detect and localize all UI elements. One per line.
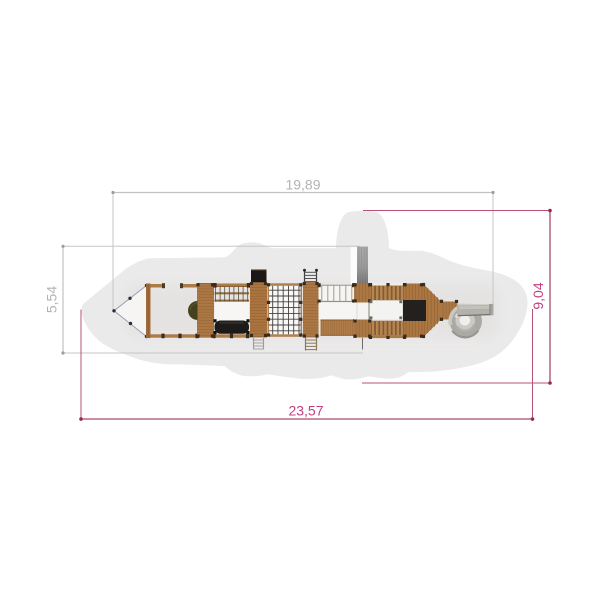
svg-text:5,54: 5,54 <box>44 286 60 313</box>
svg-text:19,89: 19,89 <box>285 177 320 193</box>
svg-text:23,57: 23,57 <box>288 403 323 419</box>
svg-text:9,04: 9,04 <box>530 282 546 309</box>
